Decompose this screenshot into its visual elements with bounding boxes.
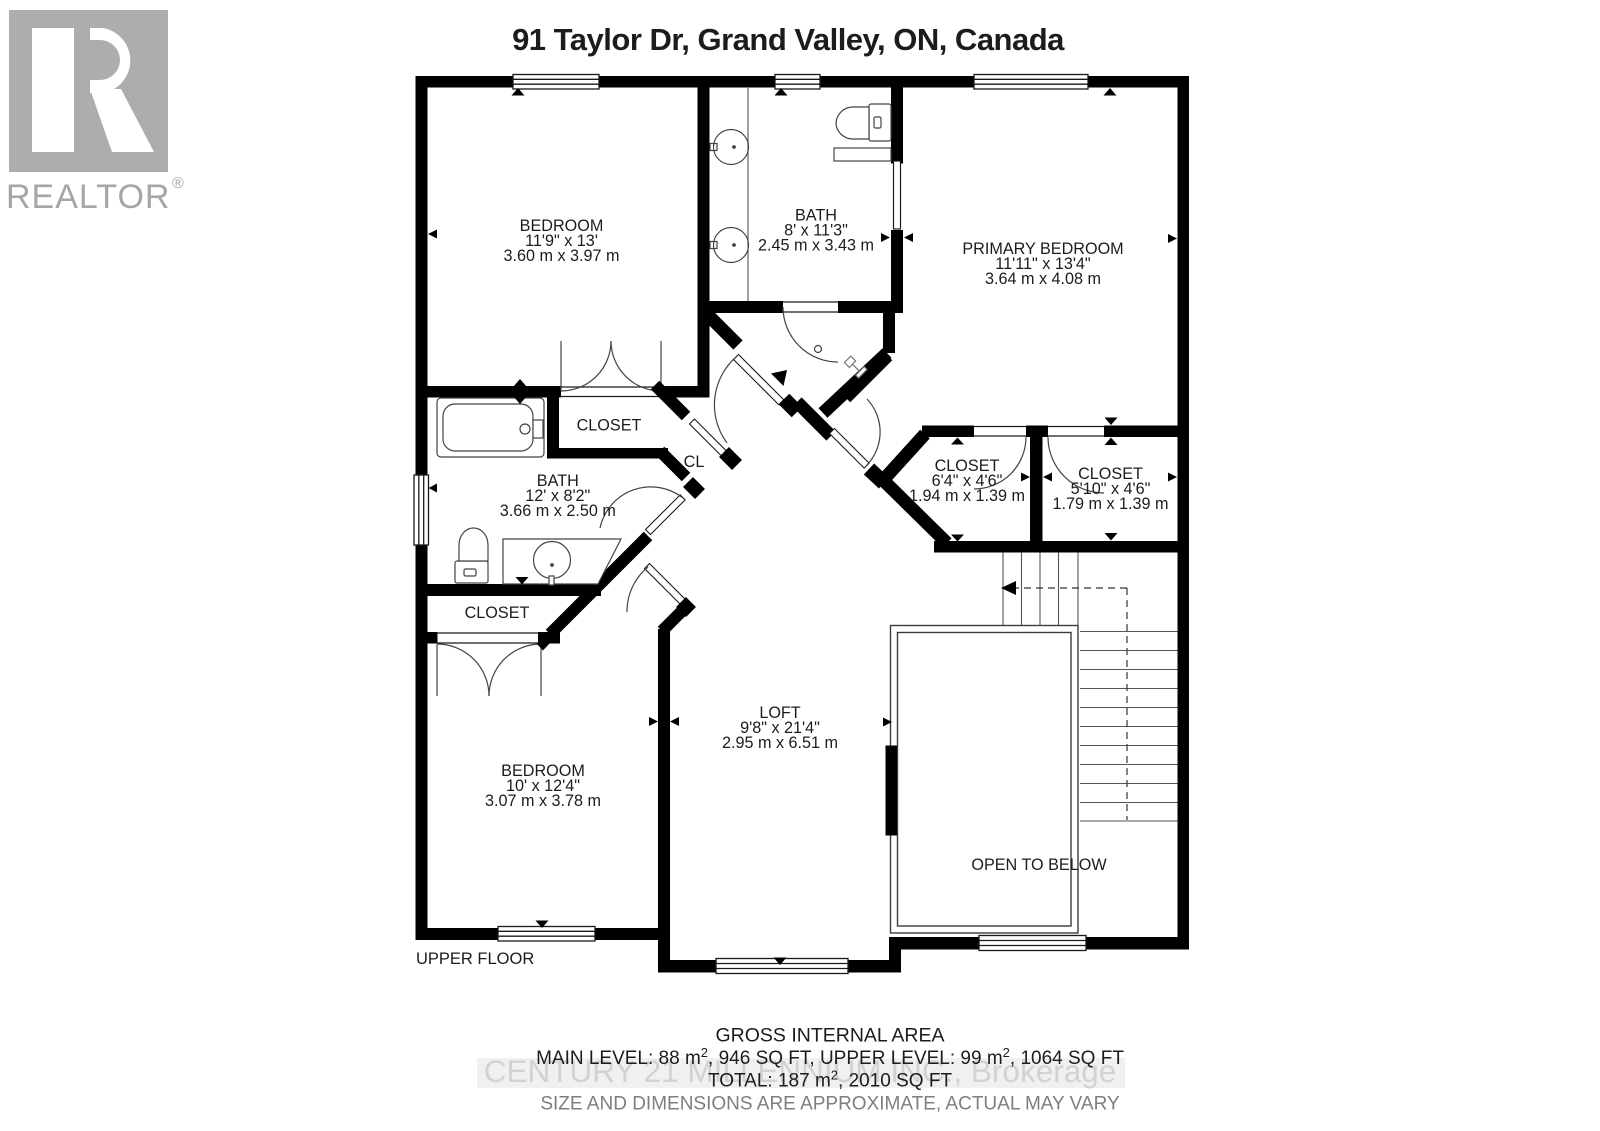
- svg-text:OPEN TO BELOW: OPEN TO BELOW: [971, 856, 1107, 874]
- svg-text:1.79 m x 1.39 m: 1.79 m x 1.39 m: [1052, 495, 1168, 513]
- svg-text:GROSS INTERNAL AREA: GROSS INTERNAL AREA: [715, 1025, 944, 1047]
- svg-text:2.95 m x 6.51 m: 2.95 m x 6.51 m: [722, 734, 838, 752]
- svg-text:1.94 m x 1.39 m: 1.94 m x 1.39 m: [909, 487, 1025, 505]
- svg-text:REALTOR: REALTOR: [6, 178, 170, 216]
- svg-text:MAIN LEVEL: 88 m2, 946 SQ FT,: MAIN LEVEL: 88 m2, 946 SQ FT, UPPER LEVE…: [536, 1045, 1124, 1069]
- svg-text:®: ®: [172, 175, 184, 192]
- svg-text:3.66 m x 2.50 m: 3.66 m x 2.50 m: [500, 502, 616, 520]
- svg-text:3.07 m x 3.78 m: 3.07 m x 3.78 m: [485, 792, 601, 810]
- svg-text:3.64 m x 4.08 m: 3.64 m x 4.08 m: [985, 270, 1101, 288]
- svg-text:CL: CL: [684, 453, 705, 471]
- svg-text:91 Taylor Dr, Grand Valley, ON: 91 Taylor Dr, Grand Valley, ON, Canada: [512, 22, 1065, 57]
- svg-text:UPPER FLOOR: UPPER FLOOR: [416, 950, 534, 968]
- svg-text:2.45 m x 3.43 m: 2.45 m x 3.43 m: [758, 237, 874, 255]
- svg-text:CLOSET: CLOSET: [465, 604, 530, 622]
- svg-text:SIZE AND DIMENSIONS ARE APPROX: SIZE AND DIMENSIONS ARE APPROXIMATE, ACT…: [540, 1094, 1120, 1115]
- svg-text:3.60 m x 3.97 m: 3.60 m x 3.97 m: [503, 247, 619, 265]
- svg-text:CLOSET: CLOSET: [577, 417, 642, 435]
- svg-text:TOTAL: 187 m2, 2010 SQ FT: TOTAL: 187 m2, 2010 SQ FT: [708, 1068, 953, 1092]
